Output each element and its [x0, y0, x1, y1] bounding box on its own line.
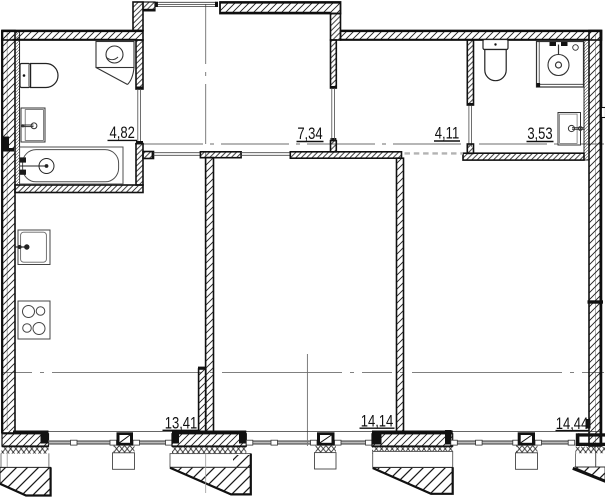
svg-text:4,82: 4,82	[110, 125, 135, 143]
svg-text:3,53: 3,53	[527, 126, 552, 144]
svg-text:7,34: 7,34	[297, 126, 322, 144]
